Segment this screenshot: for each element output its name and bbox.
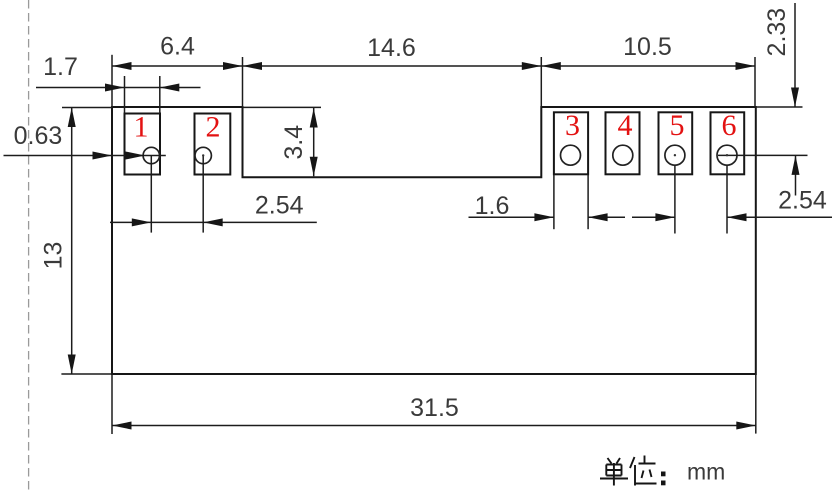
svg-text:mm: mm bbox=[687, 458, 725, 484]
svg-text:13: 13 bbox=[39, 242, 67, 270]
svg-text:4: 4 bbox=[618, 109, 633, 142]
svg-text:0.63: 0.63 bbox=[14, 122, 63, 150]
svg-text:6: 6 bbox=[722, 109, 737, 142]
svg-text:3: 3 bbox=[565, 109, 580, 142]
svg-text:2.33: 2.33 bbox=[763, 8, 791, 57]
svg-text:3.4: 3.4 bbox=[280, 125, 308, 160]
svg-text:31.5: 31.5 bbox=[410, 394, 459, 422]
svg-text:1.7: 1.7 bbox=[43, 53, 78, 81]
svg-text:2: 2 bbox=[206, 111, 221, 144]
svg-text:14.6: 14.6 bbox=[367, 34, 416, 62]
svg-text:1: 1 bbox=[134, 111, 149, 144]
svg-text:5: 5 bbox=[670, 109, 685, 142]
svg-text:10.5: 10.5 bbox=[623, 33, 672, 61]
svg-text:2.54: 2.54 bbox=[255, 192, 304, 220]
svg-text:1.6: 1.6 bbox=[475, 192, 510, 220]
svg-text:6.4: 6.4 bbox=[160, 33, 195, 61]
svg-text:2.54: 2.54 bbox=[778, 187, 827, 215]
